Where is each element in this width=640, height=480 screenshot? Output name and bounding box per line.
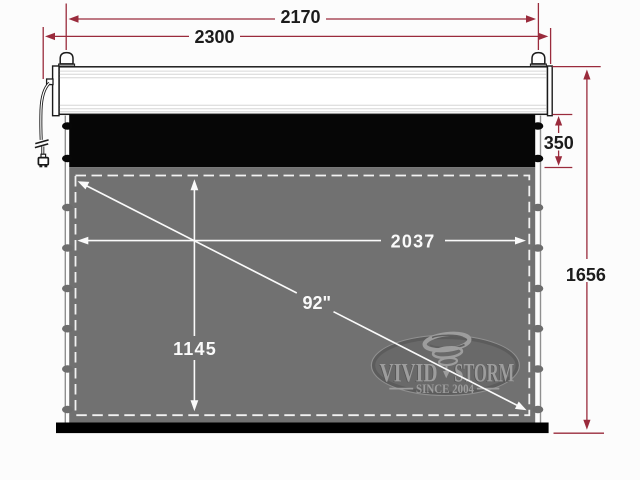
svg-text:SINCE 2004: SINCE 2004	[416, 382, 475, 396]
svg-text:350: 350	[544, 133, 574, 153]
svg-text:2037: 2037	[391, 231, 436, 251]
svg-text:1145: 1145	[173, 339, 217, 359]
svg-text:2170: 2170	[280, 7, 320, 27]
svg-text:92": 92"	[303, 293, 332, 313]
svg-text:2300: 2300	[194, 27, 234, 47]
svg-text:1656: 1656	[566, 265, 606, 285]
